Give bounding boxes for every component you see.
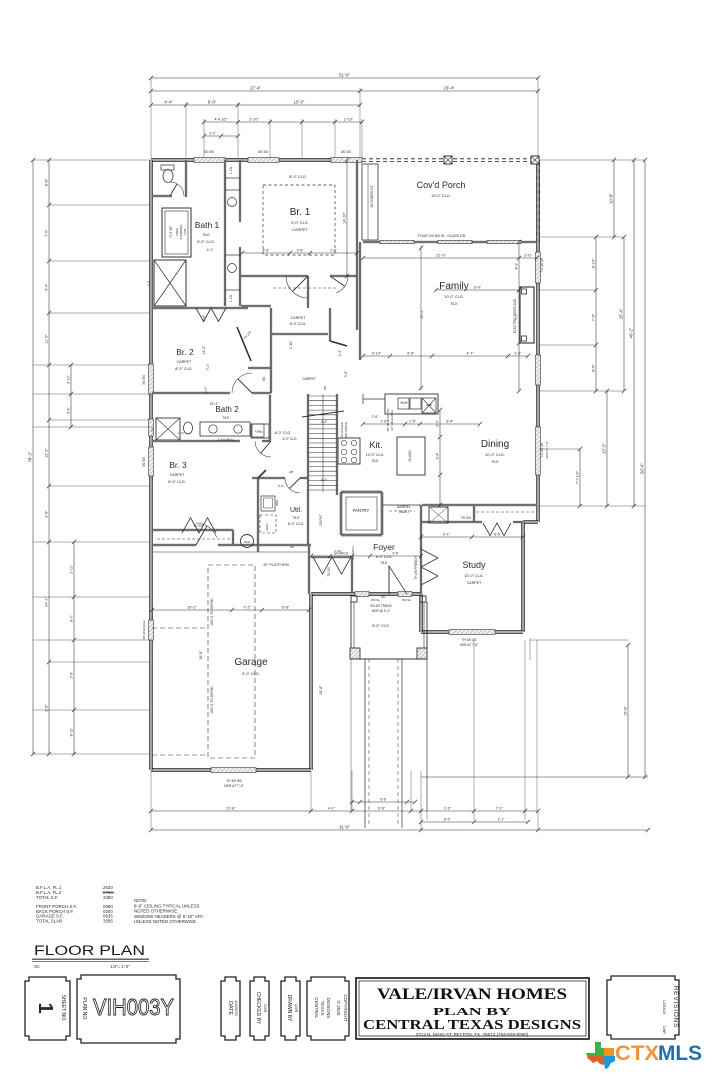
svg-text:72 X 36": 72 X 36" [169, 226, 173, 238]
svg-text:27'-4": 27'-4" [250, 85, 261, 90]
svg-text:6'-0": 6'-0" [278, 484, 284, 488]
svg-text:4'-2": 4'-2" [321, 420, 327, 424]
svg-text:24'-1": 24'-1" [44, 597, 48, 607]
svg-text:16/0 X 7/0 OH'HD: 16/0 X 7/0 OH'HD [210, 686, 214, 714]
svg-text:10'-8": 10'-8" [608, 193, 613, 204]
svg-text:16/0 X 7/0 OH'HD: 16/0 X 7/0 OH'HD [210, 598, 214, 626]
svg-text:2/8 PKT: 2/8 PKT [319, 514, 323, 526]
svg-text:L.I.N.: L.I.N. [255, 429, 261, 433]
svg-text:2/8: 2/8 [323, 386, 327, 391]
svg-text:REVISIONS: REVISIONS [672, 986, 679, 1029]
svg-text:CARPET: CARPET [170, 473, 185, 477]
svg-text:12'-2": 12'-2" [44, 448, 48, 458]
svg-text:3'-6": 3'-6" [344, 371, 348, 377]
svg-text:6'-4": 6'-4" [44, 283, 48, 291]
svg-text:51'-0": 51'-0" [339, 72, 350, 77]
svg-text:CENTRAL TEXAS DESIGNS: CENTRAL TEXAS DESIGNS [363, 1017, 581, 1032]
svg-text:MLS: MLS [658, 1041, 702, 1065]
svg-text:8'-6": 8'-6" [202, 314, 206, 322]
svg-text:2'-2": 2'-2" [209, 131, 217, 135]
svg-text:8'-10": 8'-10" [591, 258, 595, 268]
svg-text:15'-4": 15'-4" [210, 402, 219, 406]
svg-text:PANTRY: PANTRY [353, 508, 370, 513]
svg-text:4'-4 1/2": 4'-4 1/2" [214, 117, 228, 121]
svg-text:21'-8": 21'-8" [226, 806, 236, 810]
svg-text:7'-0": 7'-0" [514, 312, 518, 320]
svg-text:8'-4": 8'-4" [446, 419, 454, 423]
svg-text:12'-2": 12'-2" [202, 345, 206, 354]
svg-text:MW ABOVE: MW ABOVE [344, 422, 348, 438]
svg-text:3/0 3/0: 3/0 3/0 [142, 457, 146, 467]
svg-text:CHECKED BY: CHECKED BY [255, 992, 261, 1025]
svg-text:L.I.N.: L.I.N. [178, 431, 184, 435]
svg-text:8'-0" CLG.: 8'-0" CLG. [290, 322, 307, 326]
svg-text:60'-4": 60'-4" [639, 463, 644, 474]
svg-text:DATE: DATE [227, 1001, 233, 1016]
svg-text:TILE: TILE [371, 459, 379, 463]
svg-text:VIH003Y: VIH003Y [93, 994, 174, 1020]
svg-text:TILE: TILE [491, 460, 499, 464]
svg-text:S.H.: S.H. [150, 426, 154, 432]
svg-text:CARPET: CARPET [467, 581, 482, 585]
svg-text:25'-8": 25'-8" [319, 685, 323, 695]
svg-text:42" HIGH WALL: 42" HIGH WALL [390, 409, 394, 431]
svg-text:7'-0": 7'-0" [206, 363, 210, 371]
svg-text:2/8: 2/8 [290, 545, 295, 549]
svg-text:VENT: VENT [265, 523, 269, 531]
svg-text:1'-1": 1'-1" [498, 817, 506, 821]
svg-text:6'-1": 6'-1" [443, 532, 451, 536]
svg-text:Garage: Garage [234, 657, 268, 668]
svg-text:2'-10": 2'-10" [69, 564, 73, 573]
svg-text:20" PLATFORM: 20" PLATFORM [263, 563, 289, 567]
svg-text:3/0 3/0: 3/0 3/0 [204, 150, 214, 154]
svg-text:ISLAND: ISLAND [408, 450, 412, 462]
svg-text:2'-6": 2'-6" [69, 671, 73, 679]
svg-text:TH 2/4: TH 2/4 [193, 524, 203, 528]
svg-text:SC: SC [34, 964, 40, 969]
svg-text:3'-10": 3'-10" [334, 549, 342, 553]
svg-text:TOTAL SLAB: TOTAL SLAB [36, 919, 62, 924]
svg-text:CMR: CMR [263, 1004, 267, 1013]
svg-text:TH 3/0 8/0: TH 3/0 8/0 [226, 779, 242, 783]
svg-text:TOTAL S.F.: TOTAL S.F. [36, 895, 58, 900]
svg-text:SINK: SINK [275, 500, 279, 507]
svg-text:CMR: CMR [662, 1026, 666, 1034]
svg-text:Dining: Dining [481, 439, 509, 450]
svg-text:TILE: TILE [222, 416, 230, 420]
svg-text:2'-6": 2'-6" [44, 510, 48, 518]
svg-text:Cov'd Porch: Cov'd Porch [417, 180, 466, 190]
svg-text:3380: 3380 [103, 895, 113, 900]
svg-text:DESIGNS: DESIGNS [326, 998, 331, 1019]
svg-text:2'-6": 2'-6" [524, 253, 532, 257]
svg-text:3/0: 3/0 [262, 377, 266, 382]
svg-text:CARPET: CARPET [177, 360, 192, 364]
svg-text:15'-2": 15'-2" [601, 443, 606, 454]
svg-text:23'-4": 23'-4" [444, 85, 455, 90]
svg-text:3'-2": 3'-2" [66, 406, 70, 414]
svg-text:3/0 3/0: 3/0 3/0 [142, 375, 146, 385]
svg-text:3/0 ARCH: 3/0 ARCH [351, 546, 355, 559]
svg-text:TILE: TILE [450, 302, 458, 306]
svg-text:TH 2/0: TH 2/0 [327, 567, 331, 577]
svg-text:8'-0" CLG.: 8'-0" CLG. [376, 555, 393, 559]
svg-text:10'-0" CLG.: 10'-0" CLG. [366, 453, 385, 457]
svg-text:4/0 UNEQUAL: 4/0 UNEQUAL [142, 620, 146, 640]
svg-text:2'-10": 2'-10" [249, 117, 259, 121]
svg-text:8'-0": 8'-0" [474, 285, 482, 289]
svg-text:D/W: D/W [426, 403, 432, 407]
svg-text:2'-4": 2'-4" [338, 350, 342, 356]
svg-text:8'-0" CLG.: 8'-0" CLG. [288, 522, 305, 526]
svg-text:TILE: TILE [380, 561, 388, 565]
svg-text:7'-6": 7'-6" [380, 419, 388, 423]
svg-text:14'-10": 14'-10" [342, 211, 346, 223]
svg-text:HDR AT 7'-6": HDR AT 7'-6" [224, 784, 245, 788]
svg-text:Br. 2: Br. 2 [176, 347, 194, 357]
svg-text:8'-10": 8'-10" [69, 727, 73, 736]
svg-text:20'-1": 20'-1" [420, 309, 424, 318]
svg-text:CARPET: CARPET [291, 316, 306, 320]
svg-text:SINK: SINK [400, 401, 408, 405]
svg-text:2'-6": 2'-6" [44, 704, 48, 712]
svg-text:31'-0": 31'-0" [339, 824, 350, 829]
svg-text:FOUR 3/0 8/0 SL. GLASS DR.: FOUR 3/0 8/0 SL. GLASS DR. [418, 234, 467, 238]
svg-text:21'-0": 21'-0" [436, 253, 446, 257]
svg-text:3/0 2/0 TRANS: 3/0 2/0 TRANS [370, 604, 391, 608]
svg-text:8'-0": 8'-0" [444, 817, 452, 821]
svg-text:8'-0" CLG.: 8'-0" CLG. [372, 624, 389, 628]
svg-text:6'-6": 6'-6" [378, 806, 386, 810]
svg-text:TH 2/0: TH 2/0 [461, 516, 471, 520]
svg-text:6'-6": 6'-6" [380, 797, 386, 801]
svg-text:9'-10": 9'-10" [372, 351, 382, 355]
svg-text:VALE/IRVAN HOMES: VALE/IRVAN HOMES [377, 986, 567, 1003]
svg-text:L.I.N.: L.I.N. [229, 166, 233, 174]
svg-text:Br. 1: Br. 1 [290, 207, 311, 218]
svg-text:TEXAS: TEXAS [320, 1000, 325, 1015]
svg-text:2 X 6 WALL: 2 X 6 WALL [218, 438, 235, 442]
svg-text:DRAWN BY: DRAWN BY [286, 995, 292, 1022]
svg-text:3'-6": 3'-6" [330, 248, 338, 252]
svg-text:12/03/25: 12/03/25 [662, 1000, 666, 1015]
svg-text:10'-0" CLG.: 10'-0" CLG. [444, 295, 464, 299]
svg-text:WINDOW HEADERS @ 6'-10" AFF.: WINDOW HEADERS @ 6'-10" AFF. [134, 914, 204, 919]
svg-text:HDR AT 7'-6": HDR AT 7'-6" [545, 441, 549, 459]
svg-text:2'-6": 2'-6" [297, 248, 305, 252]
svg-text:4'-4": 4'-4" [164, 99, 173, 104]
svg-text:15'-8": 15'-8" [623, 706, 627, 716]
svg-text:SHEET NO.: SHEET NO. [60, 995, 66, 1022]
svg-text:S.H.: S.H. [147, 280, 151, 286]
svg-text:UNLESS NOTED OTHERWISE.: UNLESS NOTED OTHERWISE. [134, 919, 197, 924]
svg-text:3585: 3585 [103, 919, 113, 924]
svg-text:4'-2": 4'-2" [514, 262, 518, 270]
svg-text:3'-0": 3'-0" [204, 386, 208, 394]
svg-text:VAULT: VAULT [399, 510, 409, 514]
svg-text:4'-7": 4'-7" [466, 351, 474, 355]
svg-text:2'-10": 2'-10" [344, 117, 354, 121]
svg-text:6'-5": 6'-5" [494, 532, 502, 536]
svg-text:10'-2": 10'-2" [187, 605, 197, 609]
svg-text:7'-4 1/2": 7'-4 1/2" [575, 470, 579, 484]
svg-text:7'-2": 7'-2" [243, 605, 251, 609]
svg-text:8/0 SL.: 8/0 SL. [402, 598, 412, 602]
svg-text:HDR AT 7'-6": HDR AT 7'-6" [460, 643, 479, 647]
svg-text:3'-4": 3'-4" [435, 452, 439, 460]
svg-text:15'-0": 15'-0" [294, 99, 305, 104]
svg-text:8'-0" CLG.: 8'-0" CLG. [275, 431, 292, 435]
svg-text:Util.: Util. [290, 507, 302, 514]
svg-text:TILE: TILE [292, 516, 300, 520]
svg-text:10'-0" CLG.: 10'-0" CLG. [431, 194, 451, 198]
svg-text:2'-0": 2'-0" [514, 351, 522, 355]
svg-text:6'-1": 6'-1" [207, 248, 215, 252]
svg-text:8'-8": 8'-8" [44, 178, 48, 186]
svg-text:8'-0" CLG.: 8'-0" CLG. [242, 672, 259, 676]
svg-text:Study: Study [462, 560, 486, 570]
svg-text:Br. 3: Br. 3 [169, 460, 187, 470]
svg-text:8'-0" CLG.: 8'-0" CLG. [175, 367, 192, 371]
svg-text:78'-2": 78'-2" [27, 451, 32, 462]
svg-text:7'-0": 7'-0" [44, 229, 48, 237]
svg-text:3/0: 3/0 [381, 595, 386, 599]
svg-text:8'-0" CLG.: 8'-0" CLG. [289, 175, 306, 179]
svg-text:Bath 2: Bath 2 [215, 405, 239, 414]
svg-text:8'-0": 8'-0" [69, 614, 73, 622]
svg-text:L.I.N.: L.I.N. [229, 294, 233, 302]
svg-text:6'-6": 6'-6" [591, 364, 595, 372]
svg-text:1/4"= 1'-0": 1/4"= 1'-0" [110, 964, 130, 969]
svg-text:7'-6": 7'-6" [372, 415, 380, 419]
svg-text:2'-10": 2'-10" [289, 341, 293, 349]
svg-text:TH 3/0 3/0: TH 3/0 3/0 [462, 638, 477, 642]
svg-text:26'-8": 26'-8" [199, 650, 203, 660]
svg-text:11'-0": 11'-0" [44, 334, 48, 344]
svg-text:BARREL: BARREL [397, 505, 411, 509]
svg-text:Bath 1: Bath 1 [195, 220, 220, 230]
svg-text:TUB: TUB [183, 229, 187, 235]
svg-text:Family: Family [439, 281, 468, 292]
svg-text:CARPET: CARPET [302, 377, 316, 381]
svg-text:TH 3/0 3/0: TH 3/0 3/0 [540, 258, 544, 272]
svg-text:7'-1": 7'-1" [496, 806, 504, 810]
svg-text:CTX: CTX [615, 1041, 660, 1065]
svg-text:4'-1": 4'-1" [328, 806, 336, 810]
svg-text:© 2025: © 2025 [336, 1001, 342, 1016]
svg-text:40'-2": 40'-2" [628, 327, 633, 338]
svg-text:FLOOR PLAN: FLOOR PLAN [34, 943, 145, 958]
svg-text:NOTE:: NOTE: [134, 898, 147, 903]
svg-text:3'-0": 3'-0" [435, 419, 439, 427]
svg-text:TILE: TILE [202, 233, 210, 237]
svg-text:W/H: W/H [244, 540, 250, 544]
svg-text:3'-10": 3'-10" [66, 374, 70, 383]
svg-text:8'-0" CEILING TYPICAL UNLESS: 8'-0" CEILING TYPICAL UNLESS [134, 903, 200, 908]
svg-text:CARPET: CARPET [292, 228, 308, 232]
svg-text:PLAN NO.: PLAN NO. [81, 997, 87, 1020]
svg-text:20'-4": 20'-4" [618, 308, 623, 319]
svg-text:NOTED OTHERWISE.: NOTED OTHERWISE. [134, 909, 178, 914]
svg-text:HDR @ 9'-4": HDR @ 9'-4" [372, 609, 390, 613]
svg-text:3/0 3/0: 3/0 3/0 [341, 150, 351, 154]
svg-text:6'-0": 6'-0" [208, 99, 217, 104]
svg-text:10'-0" CLG.: 10'-0" CLG. [485, 453, 505, 457]
svg-text:COPYRIGHT: COPYRIGHT [343, 994, 348, 1022]
svg-text:3/0 3/0: 3/0 3/0 [258, 150, 268, 154]
svg-text:8'-0" CLG.: 8'-0" CLG. [197, 240, 214, 244]
svg-text:10/20/25: 10/20/25 [234, 1000, 239, 1016]
svg-text:TH 3/0 3/0: TH 3/0 3/0 [540, 443, 544, 457]
svg-text:3'-6": 3'-6" [392, 551, 398, 555]
svg-text:8'-0" CLG.: 8'-0" CLG. [283, 437, 298, 441]
svg-text:6'-6": 6'-6" [407, 351, 415, 355]
svg-text:2/8: 2/8 [289, 470, 294, 474]
svg-text:OUTDOOR KIT.: OUTDOOR KIT. [370, 185, 374, 208]
svg-text:6'-8": 6'-8" [282, 605, 290, 609]
svg-text:10'-0" CLG.: 10'-0" CLG. [464, 574, 484, 578]
svg-text:1: 1 [34, 1002, 56, 1013]
svg-text:Kit.: Kit. [369, 440, 382, 450]
svg-text:9'-0" CLG.: 9'-0" CLG. [291, 221, 308, 225]
svg-text:CMR: CMR [294, 1004, 298, 1013]
svg-text:2'-6": 2'-6" [409, 419, 417, 423]
svg-text:2314 N. MAIN ST. BELTON, TX. 7: 2314 N. MAIN ST. BELTON, TX. 76513 (254-… [416, 1032, 529, 1037]
svg-text:7'-0": 7'-0" [591, 313, 595, 321]
svg-text:1'-0": 1'-0" [444, 806, 452, 810]
svg-text:TH 2/8 FRENCH: TH 2/8 FRENCH [414, 555, 418, 579]
svg-text:CENTRAL: CENTRAL [314, 997, 319, 1019]
svg-text:8/0 SL.: 8/0 SL. [371, 598, 381, 602]
svg-text:4'-2": 4'-2" [321, 478, 327, 482]
svg-text:4'-6": 4'-6" [263, 248, 271, 252]
svg-text:8'-0" CLG.: 8'-0" CLG. [168, 480, 185, 484]
